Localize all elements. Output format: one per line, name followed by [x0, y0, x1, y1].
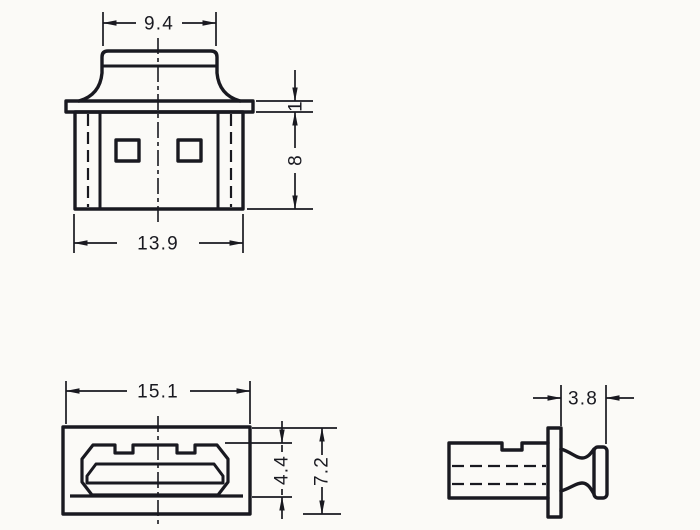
knob-neck-bottom [561, 483, 594, 494]
latch-window-left [116, 140, 139, 161]
dim-label-overall-height: 7.2 [312, 456, 333, 486]
dim-label-body-height: 8 [286, 154, 307, 166]
dim-label-front-width: 15.1 [137, 382, 179, 403]
dimension-overall-height: 7.2 [252, 428, 341, 514]
plug-outer-contour [82, 445, 228, 495]
dim-label-flange-thickness: 1 [286, 100, 307, 112]
knob-neck-top [561, 449, 594, 458]
dim-label-body-width: 13.9 [137, 234, 179, 255]
dim-label-knob-depth: 3.8 [568, 389, 598, 410]
barrel-outline [449, 443, 548, 498]
top-view: 9.4 13.9 1 8 [66, 12, 313, 255]
knob-cap [594, 447, 607, 498]
dimension-body-height: 8 [247, 112, 313, 209]
front-view: 15.1 4.4 7.2 [63, 381, 341, 526]
dim-label-cap-width: 9.4 [144, 14, 174, 35]
dimension-cap-width: 9.4 [103, 12, 216, 46]
latch-window-right [178, 140, 201, 161]
dimension-flange-thickness: 1 [256, 70, 313, 112]
cap-outline [79, 51, 240, 101]
technical-drawing: 9.4 13.9 1 8 [0, 0, 700, 530]
plug-inner-contour [87, 464, 223, 483]
dim-label-opening-height: 4.4 [272, 455, 293, 485]
dimension-opening-height: 4.4 [225, 421, 293, 519]
flange-side [548, 428, 561, 517]
side-view: 3.8 [449, 385, 634, 517]
